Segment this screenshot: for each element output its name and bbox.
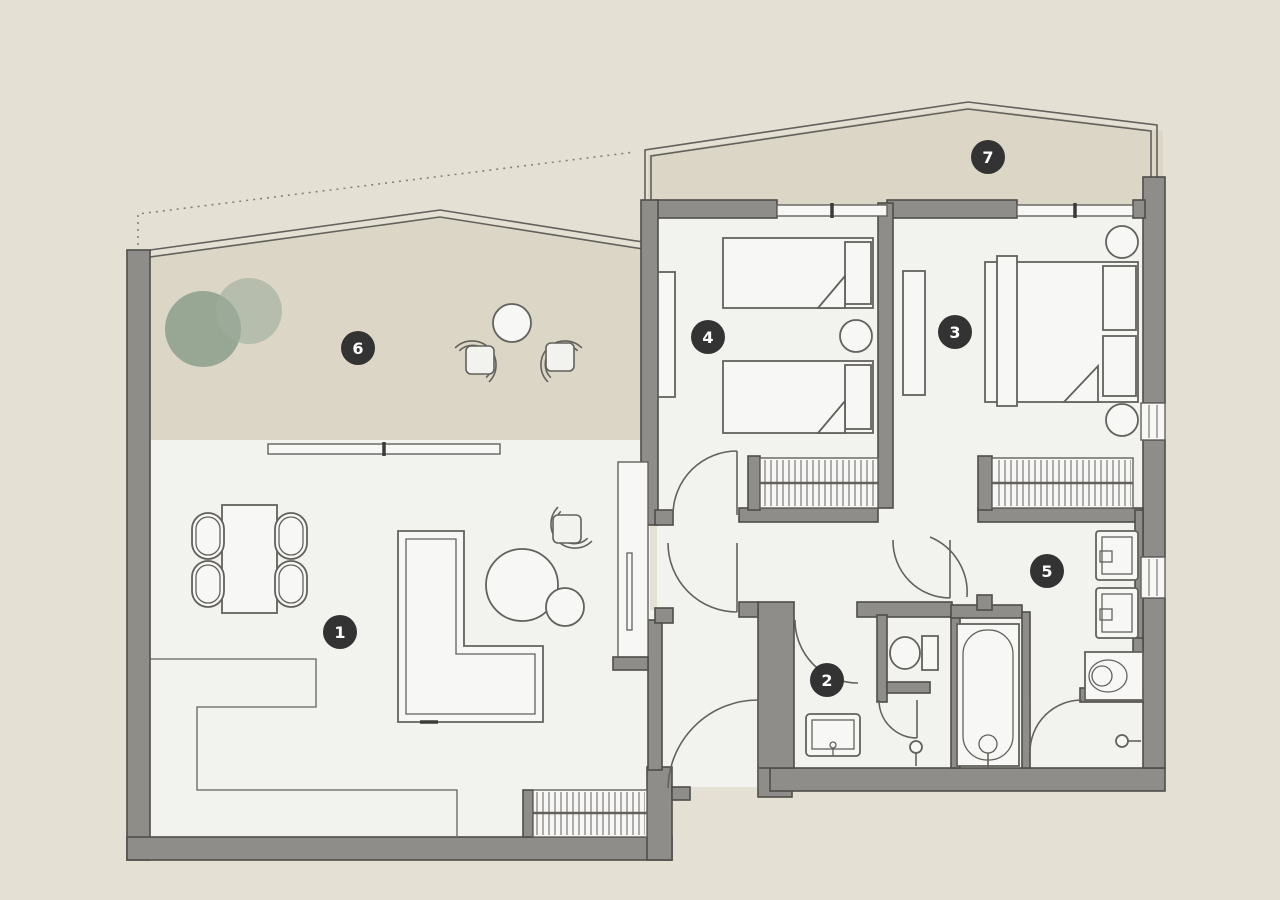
wall-wc-top-b xyxy=(857,602,952,617)
coat-closet-entry xyxy=(533,790,647,837)
wall-vestibule-right xyxy=(758,602,794,768)
living-terrace-slider xyxy=(268,442,500,456)
svg-text:1: 1 xyxy=(334,623,345,642)
appliance-top xyxy=(1096,531,1138,580)
wall-wing-top-b xyxy=(887,200,1017,218)
wall-right-middle xyxy=(1143,440,1165,557)
bedside-table-room3-top xyxy=(1106,226,1138,258)
sink-room2 xyxy=(806,714,860,756)
terrace-table xyxy=(493,304,531,342)
plant-small xyxy=(216,278,282,344)
wardrobe-room3 xyxy=(992,458,1133,508)
floor-plan-page: 1 2 3 4 5 6 7 xyxy=(0,0,1280,900)
wall-entry-jamb xyxy=(672,787,690,800)
wall-jamb-b xyxy=(655,608,673,623)
dining-table xyxy=(222,505,277,613)
wardrobe-post-room3 xyxy=(978,456,992,510)
room-badge-5: 5 xyxy=(1030,554,1064,588)
wall-jamb-a xyxy=(655,510,673,525)
wall-left xyxy=(127,250,150,860)
wall-wc-top-a xyxy=(739,602,758,617)
room-badge-7: 7 xyxy=(971,140,1005,174)
double-bed xyxy=(985,256,1138,406)
floor-plan: 1 2 3 4 5 6 7 xyxy=(0,0,1280,900)
window-right-room5 xyxy=(1141,557,1165,598)
wall-jamb-room5 xyxy=(977,595,992,610)
wall-divider-wc xyxy=(877,615,887,702)
wall-half-toilet xyxy=(887,682,930,693)
wall-corridor-top-b xyxy=(978,508,1143,522)
wardrobe-strip-room4 xyxy=(658,272,675,397)
single-bed-top xyxy=(723,238,873,308)
sliding-door-panel xyxy=(613,462,648,670)
svg-text:7: 7 xyxy=(982,148,993,167)
wall-wing-top-a xyxy=(655,200,777,218)
vanity-sink-room5 xyxy=(1085,652,1143,700)
svg-text:3: 3 xyxy=(949,323,960,342)
room-badge-1: 1 xyxy=(323,615,357,649)
svg-text:4: 4 xyxy=(702,328,713,347)
wall-divider-rooms-4-3 xyxy=(878,203,893,508)
room-badge-3: 3 xyxy=(938,315,972,349)
room-badge-4: 4 xyxy=(691,320,725,354)
side-table xyxy=(546,588,584,626)
bedside-table-room3-bottom xyxy=(1106,404,1138,436)
entry-vestibule-floor xyxy=(648,610,764,787)
room-badge-2: 2 xyxy=(810,663,844,697)
wall-divider-tub-right xyxy=(1022,612,1030,768)
coat-closet-post xyxy=(523,790,533,837)
wall-right-upper xyxy=(1143,177,1165,403)
room-badge-6: 6 xyxy=(341,331,375,365)
wardrobe-post-room4 xyxy=(748,456,760,510)
toilet xyxy=(890,636,938,670)
wall-bottom-living xyxy=(127,837,672,860)
svg-text:5: 5 xyxy=(1041,562,1052,581)
svg-text:6: 6 xyxy=(352,339,363,358)
single-bed-bottom xyxy=(723,361,873,433)
bedroom3-terrace-slider xyxy=(1017,203,1133,218)
window-right-room3 xyxy=(1141,403,1165,440)
wall-wing-left-lower xyxy=(648,620,662,770)
bathtub xyxy=(957,624,1019,768)
bedroom4-terrace-slider xyxy=(777,203,887,218)
wall-wing-top-c xyxy=(1133,200,1145,218)
wall-right-lower xyxy=(1143,598,1165,768)
appliance-bottom xyxy=(1096,588,1138,638)
dresser-room3 xyxy=(903,271,925,395)
wall-bath-bottom xyxy=(770,768,1165,791)
bedside-table-room4 xyxy=(840,320,872,352)
wardrobe-room4 xyxy=(760,458,878,508)
svg-text:2: 2 xyxy=(821,671,832,690)
